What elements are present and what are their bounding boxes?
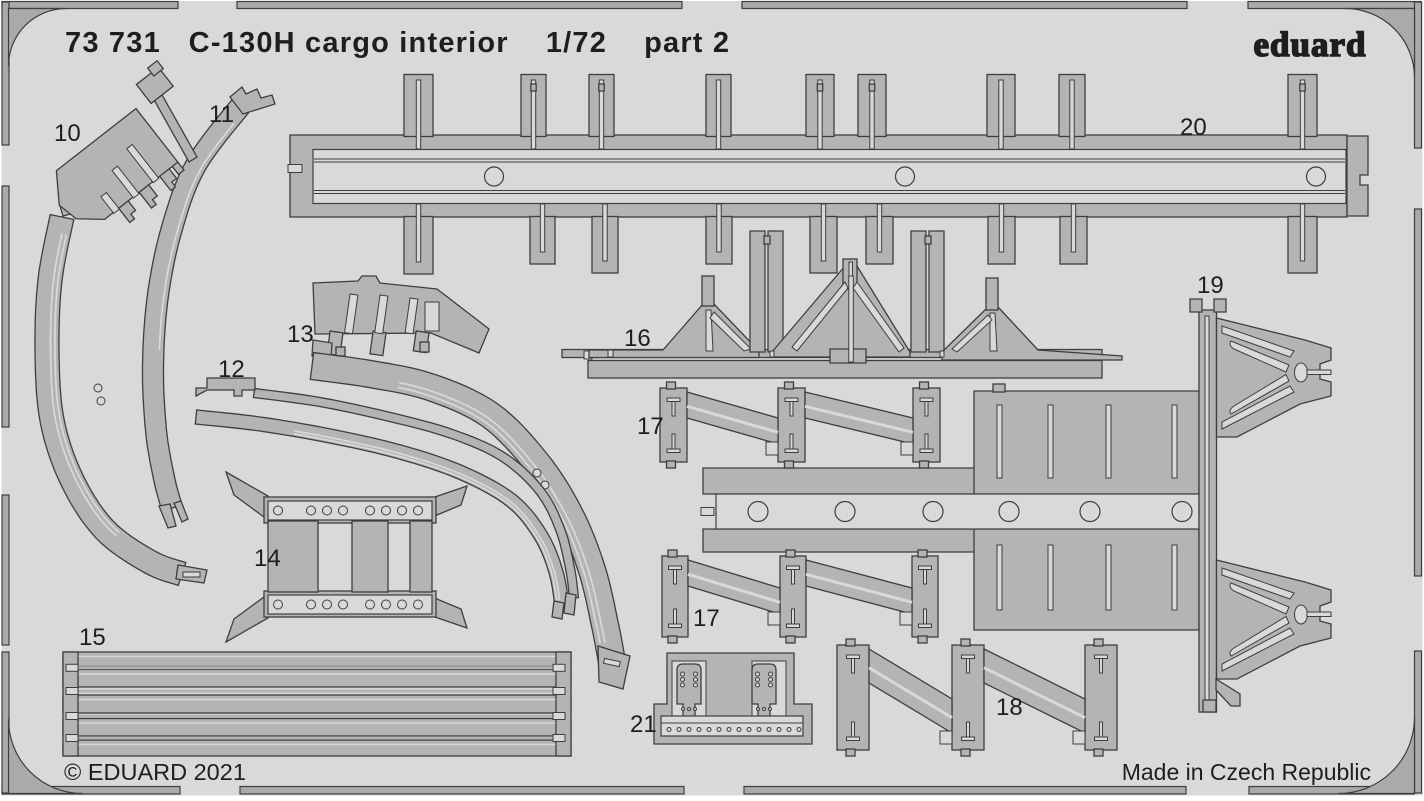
svg-text:20: 20 <box>1180 114 1207 141</box>
svg-text:11: 11 <box>209 101 234 128</box>
svg-text:10: 10 <box>54 120 81 147</box>
svg-text:19: 19 <box>1197 272 1224 299</box>
svg-text:14: 14 <box>254 545 281 572</box>
svg-text:18: 18 <box>996 694 1023 721</box>
svg-text:Made in Czech Republic: Made in Czech Republic <box>1122 759 1371 785</box>
svg-text:17: 17 <box>637 413 664 440</box>
svg-text:© EDUARD 2021: © EDUARD 2021 <box>64 759 246 785</box>
svg-text:21: 21 <box>630 711 657 738</box>
svg-text:15: 15 <box>79 624 106 651</box>
svg-text:12: 12 <box>218 356 245 383</box>
svg-text:73 731 C-130H cargo interior: 73 731 C-130H cargo interior 1/72 part 2 <box>65 27 730 59</box>
svg-text:17: 17 <box>693 605 720 632</box>
svg-text:eduard: eduard <box>1254 25 1367 64</box>
svg-text:16: 16 <box>624 325 651 352</box>
svg-text:13: 13 <box>287 321 314 348</box>
